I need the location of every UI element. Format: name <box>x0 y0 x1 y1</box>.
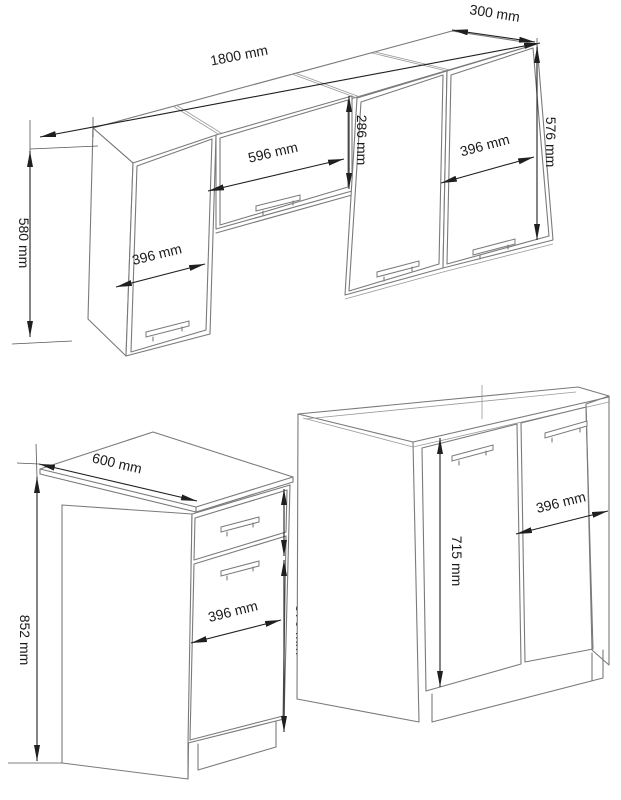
witness-line <box>30 146 98 149</box>
wall-cabinet-row: 1800 mm 300 mm 576 mm 286 mm 596 mm 396 … <box>12 1 559 356</box>
sink-plinth <box>432 650 603 722</box>
dim-label-wall-total-width: 1800 mm <box>209 42 269 69</box>
sink-back-rail-top <box>298 387 578 414</box>
sink-right-top-edge <box>578 387 609 396</box>
dim-label-sink-door-height: 715 mm <box>449 536 465 587</box>
dim-label-wall-left-height: 580 mm <box>16 218 32 269</box>
sink-right-door-handle <box>545 421 587 442</box>
sink-left-door-handle <box>452 445 493 465</box>
sink-right-door <box>521 407 593 662</box>
dim-label-flip-height: 286 mm <box>354 115 370 166</box>
sink-left-side <box>297 414 419 722</box>
dim-label-sink-door-width: 396 mm <box>534 488 587 516</box>
witness-tick <box>36 444 37 477</box>
witness-line <box>12 341 72 344</box>
sink-front-rail-top <box>413 397 609 442</box>
dim-label-base-height: 852 mm <box>17 615 33 666</box>
kitchen-dimension-diagram: 1800 mm 300 mm 576 mm 286 mm 596 mm 396 … <box>0 0 621 800</box>
wall-left-cabinet-side <box>88 128 133 356</box>
dim-label-wall-depth: 300 mm <box>469 1 521 25</box>
witness-line <box>17 463 39 464</box>
sink-cabinet: 715 mm 396 mm <box>297 385 609 722</box>
diagram-canvas: 1800 mm 300 mm 576 mm 286 mm 596 mm 396 … <box>0 0 621 800</box>
dim-label-wall-right-height: 576 mm <box>543 117 559 168</box>
sink-left-door <box>422 424 521 691</box>
base-cabinet-side <box>62 505 192 779</box>
base-cabinet: 600 mm 852 mm 140 mm 570 mm 396 mm <box>8 432 313 779</box>
sink-back-rail-inner <box>305 392 576 419</box>
